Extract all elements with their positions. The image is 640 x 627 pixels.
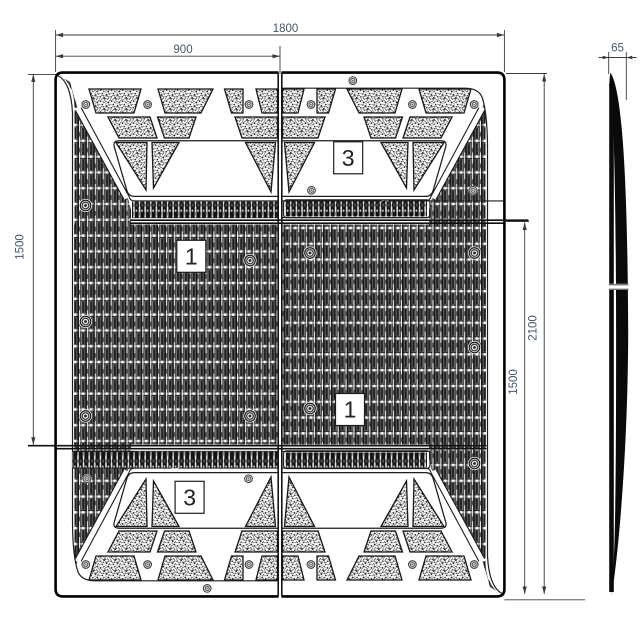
svg-text:1800: 1800 (273, 23, 299, 35)
svg-text:1: 1 (185, 243, 198, 269)
svg-text:2100: 2100 (528, 315, 540, 341)
svg-text:900: 900 (173, 44, 192, 56)
svg-text:1: 1 (344, 397, 357, 423)
svg-text:1500: 1500 (15, 234, 27, 260)
svg-text:65: 65 (611, 43, 624, 55)
svg-text:1500: 1500 (508, 369, 520, 395)
svg-text:3: 3 (183, 484, 196, 510)
svg-text:3: 3 (342, 145, 355, 171)
